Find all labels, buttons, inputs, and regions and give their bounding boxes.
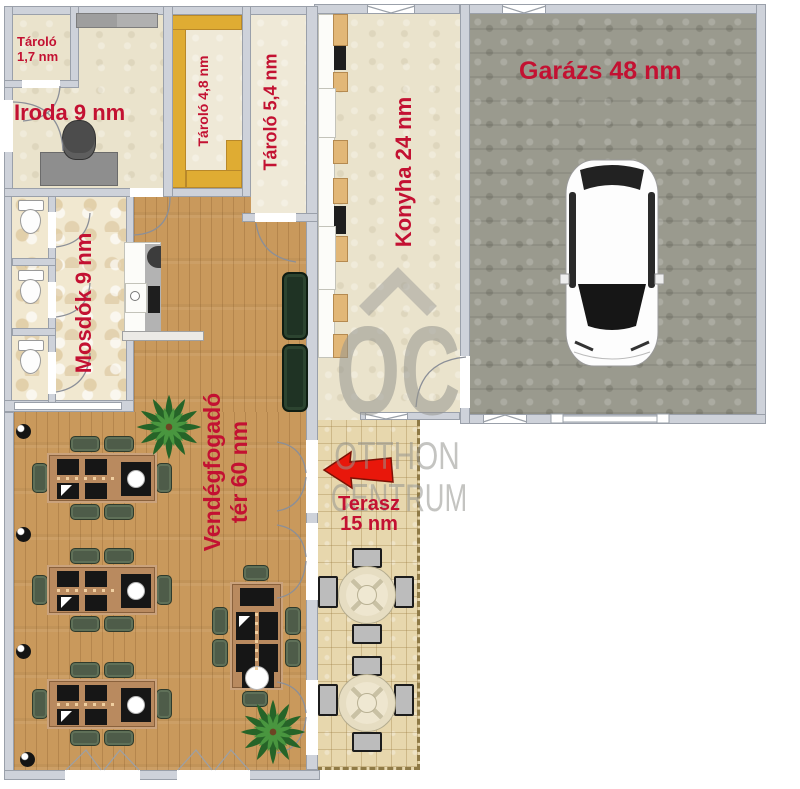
- sofa: [282, 344, 308, 412]
- dining-chair: [156, 689, 172, 719]
- dining-chair: [70, 730, 100, 746]
- terrace-chair: [352, 548, 382, 568]
- window: [483, 414, 527, 424]
- door-opening: [48, 282, 56, 318]
- floor-plan: OC OTTHON CENTRUM Tároló 1,7 nm Iroda 9 …: [0, 0, 800, 789]
- terrace-chair: [394, 576, 414, 608]
- kitchen-cabinet: [333, 178, 348, 204]
- door-opening: [48, 212, 56, 248]
- dining-chair: [70, 616, 100, 632]
- window: [65, 770, 140, 780]
- wall-lamp-icon: [16, 527, 31, 542]
- car-icon: [560, 156, 664, 370]
- sofa: [282, 272, 308, 340]
- dining-chair: [156, 463, 172, 493]
- door-opening: [460, 356, 470, 408]
- kitchen-cabinet: [333, 14, 348, 46]
- bar-partition: [122, 331, 204, 341]
- dining-chair: [70, 436, 100, 452]
- door-opening: [130, 188, 163, 197]
- label-tarolo-54: Tároló 5,4 nm: [261, 53, 282, 170]
- terrace-table: [338, 674, 396, 732]
- dining-chair: [156, 575, 172, 605]
- terrace-chair: [352, 732, 382, 752]
- wall: [4, 770, 320, 780]
- dining-table-set: [32, 436, 172, 520]
- dining-chair: [104, 436, 134, 452]
- dining-chair: [212, 607, 228, 635]
- toilet: [18, 270, 44, 306]
- terrace-table: [338, 566, 396, 624]
- wall: [242, 6, 251, 197]
- label-tarolo-48: Tároló 4,8 nm: [195, 55, 211, 146]
- label-vendegfogado: Vendégfogadó tér 60 nm: [199, 393, 253, 551]
- label-tarolo-small: Tároló 1,7 nm: [17, 34, 58, 64]
- office-chair: [62, 120, 96, 160]
- storage-shelf: [172, 15, 186, 188]
- dining-chair: [70, 548, 100, 564]
- wall-lamp-icon: [16, 644, 31, 659]
- dining-table: [47, 453, 157, 503]
- watermark-logo: OC: [336, 299, 461, 444]
- terrace-chair: [352, 624, 382, 644]
- wall-lamp-icon: [20, 752, 35, 767]
- door-opening: [48, 352, 56, 394]
- car-windshield: [578, 284, 646, 330]
- window: [14, 402, 122, 410]
- window: [367, 4, 415, 14]
- office-shelf: [76, 13, 158, 28]
- window: [502, 4, 546, 14]
- kitchen-appliance: [334, 46, 346, 70]
- dining-table-set: [32, 662, 172, 746]
- terrace-table-set: [318, 656, 414, 752]
- door-opening: [306, 440, 318, 513]
- dining-chair: [70, 504, 100, 520]
- door-opening: [4, 100, 13, 152]
- wall: [4, 6, 314, 15]
- kitchen-appliance: [318, 226, 336, 290]
- dining-chair: [104, 616, 134, 632]
- dining-chair: [32, 463, 48, 493]
- label-konyha: Konyha 24 nm: [391, 97, 417, 247]
- wall: [12, 258, 56, 266]
- wall: [12, 328, 56, 336]
- dining-table-set: [210, 563, 306, 711]
- wall: [4, 188, 12, 412]
- label-mosdok: Mosdók 9 nm: [71, 233, 97, 374]
- kitchen-appliance: [318, 88, 336, 138]
- label-terasz: Terasz 15 nm: [338, 494, 400, 534]
- label-garazs: Garázs 48 nm: [519, 57, 682, 86]
- dining-chair: [70, 662, 100, 678]
- storage-shelf: [172, 15, 242, 30]
- kitchen-cabinet: [333, 140, 348, 164]
- dining-chair: [32, 575, 48, 605]
- dining-chair: [212, 639, 228, 667]
- bar-appliance: [148, 286, 160, 313]
- terrace-chair: [318, 684, 338, 716]
- dining-chair: [242, 691, 268, 707]
- dining-table: [47, 565, 157, 615]
- dining-chair: [104, 504, 134, 520]
- watermark-text-top: OTTHON: [334, 435, 460, 479]
- dining-chair: [104, 662, 134, 678]
- toilet: [18, 340, 44, 376]
- dining-chair: [285, 639, 301, 667]
- dining-table: [230, 582, 283, 690]
- dining-table: [47, 679, 157, 729]
- terrace-chair: [394, 684, 414, 716]
- dining-chair: [32, 689, 48, 719]
- dining-table-set: [32, 548, 172, 632]
- wall: [163, 6, 173, 197]
- wall-lamp-icon: [16, 424, 31, 439]
- door-opening: [306, 680, 318, 755]
- wall: [4, 412, 14, 780]
- bar-appliance-knob: [130, 291, 140, 301]
- dining-chair: [104, 730, 134, 746]
- dining-chair: [285, 607, 301, 635]
- label-iroda: Iroda 9 nm: [14, 100, 125, 126]
- door-opening: [255, 213, 296, 222]
- terrace-table-set: [318, 548, 414, 644]
- storage-shelf: [186, 170, 242, 188]
- door-opening: [306, 523, 318, 600]
- toilet: [18, 200, 44, 236]
- window: [177, 770, 250, 780]
- dining-chair: [104, 548, 134, 564]
- terrace-chair: [352, 656, 382, 676]
- terrace-chair: [318, 576, 338, 608]
- wall: [756, 4, 766, 424]
- door-opening: [22, 80, 60, 88]
- dining-chair: [243, 565, 269, 581]
